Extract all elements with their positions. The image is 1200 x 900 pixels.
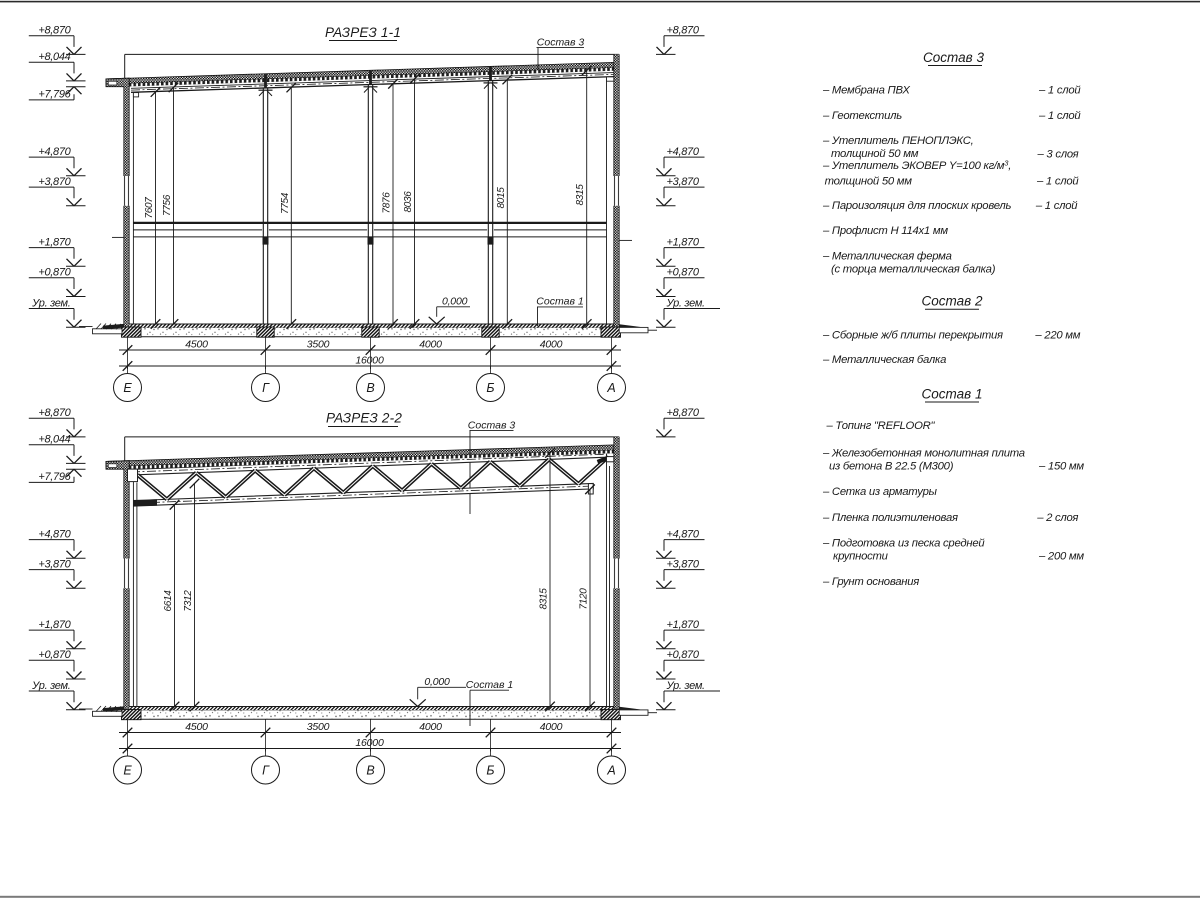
svg-text:Состав 1: Состав 1 [536,296,583,308]
svg-text:+8,870: +8,870 [667,25,700,37]
svg-text:(с торца металлическая балка): (с торца металлическая балка) [831,263,996,275]
svg-text:из бетона В 22.5 (М300): из бетона В 22.5 (М300) [829,461,954,473]
svg-text:+3,870: +3,870 [38,176,71,188]
svg-text:– 1 слой: – 1 слой [1036,176,1079,188]
svg-text:– Топинг "REFLOOR": – Топинг "REFLOOR" [826,420,936,432]
svg-text:РАЗРЕЗ 2-2: РАЗРЕЗ 2-2 [326,410,402,425]
svg-text:+1,870: +1,870 [667,619,700,631]
svg-text:+3,870: +3,870 [38,558,71,570]
svg-text:– 1 слой: – 1 слой [1038,110,1081,122]
svg-text:Состав 3: Состав 3 [923,50,984,65]
svg-text:Ур. зем.: Ур. зем. [666,297,705,309]
svg-text:– Металлическая балка: – Металлическая балка [822,354,946,366]
svg-text:4500: 4500 [185,339,208,351]
svg-text:+0,870: +0,870 [38,267,71,279]
svg-text:+3,870: +3,870 [667,176,700,188]
svg-text:+0,870: +0,870 [667,649,700,661]
svg-text:4000: 4000 [540,721,563,733]
svg-text:3500: 3500 [307,339,330,351]
svg-text:– 150 мм: – 150 мм [1038,461,1084,473]
svg-text:7754: 7754 [280,192,291,214]
svg-text:– Грунт основания: – Грунт основания [822,576,919,588]
svg-text:толщиной 50 мм: толщиной 50 мм [825,176,913,188]
svg-text:0,000: 0,000 [424,676,450,688]
svg-text:– 220 мм: – 220 мм [1034,330,1080,342]
svg-text:+0,870: +0,870 [667,267,700,279]
svg-text:– Пароизоляция для плоских кро: – Пароизоляция для плоских кровель [822,200,1012,212]
svg-text:В: В [366,381,374,395]
svg-text:– Профлист Н 114х1 мм: – Профлист Н 114х1 мм [822,225,948,237]
svg-text:+3,870: +3,870 [667,558,700,570]
svg-text:6614: 6614 [163,590,174,612]
svg-text:– Железобетонная монолитная п: – Железобетонная монолитная плита [822,448,1025,460]
svg-text:Состав 2: Состав 2 [922,294,983,309]
svg-text:– 200 мм: – 200 мм [1038,550,1084,562]
svg-text:– Сетка из арматуры: – Сетка из арматуры [822,486,938,498]
svg-text:3500: 3500 [307,721,330,733]
svg-text:Б: Б [486,381,494,395]
svg-text:– Подготовка из песка средней: – Подготовка из песка средней [822,538,985,550]
svg-text:А: А [606,381,615,395]
svg-text:+4,870: +4,870 [667,528,700,540]
svg-text:4000: 4000 [540,339,563,351]
svg-text:Состав 1: Состав 1 [466,679,513,691]
svg-text:– 2 слоя: – 2 слоя [1036,512,1078,524]
svg-text:Состав 3: Состав 3 [537,36,585,48]
svg-text:– Утеплитель ПЕНОПЛЭКС,: – Утеплитель ПЕНОПЛЭКС, [822,135,974,147]
svg-text:– 3 слоя: – 3 слоя [1037,149,1079,161]
svg-text:+1,870: +1,870 [38,619,71,631]
svg-text:крупности: крупности [833,550,889,562]
svg-text:+0,870: +0,870 [38,649,71,661]
svg-text:– Металлическая ферма: – Металлическая ферма [822,250,952,262]
svg-text:Ур. зем.: Ур. зем. [31,297,70,309]
svg-text:16000: 16000 [355,737,384,749]
svg-text:Е: Е [123,381,132,395]
svg-text:16000: 16000 [355,355,384,367]
svg-text:Состав 1: Состав 1 [922,386,983,401]
svg-text:+8,870: +8,870 [38,407,71,419]
svg-text:7756: 7756 [162,194,173,216]
svg-text:+7,796: +7,796 [38,89,71,101]
svg-text:– Сборные ж/б плиты перекрытия: – Сборные ж/б плиты перекрытия [822,330,1003,342]
svg-text:– Пленка полиэтиленовая: – Пленка полиэтиленовая [822,512,958,524]
svg-text:Е: Е [123,763,132,777]
svg-text:Ур. зем.: Ур. зем. [666,680,705,692]
svg-text:7120: 7120 [579,588,590,610]
svg-text:4000: 4000 [419,339,442,351]
svg-text:Ур. зем.: Ур. зем. [31,680,70,692]
svg-text:+8,870: +8,870 [667,407,700,419]
svg-text:+8,870: +8,870 [38,25,71,37]
svg-text:– Геотекстиль: – Геотекстиль [822,110,902,122]
svg-text:+7,796: +7,796 [38,471,71,483]
svg-text:А: А [606,763,615,777]
svg-text:+1,870: +1,870 [667,236,700,248]
svg-text:8015: 8015 [496,187,507,209]
svg-text:7312: 7312 [183,590,194,612]
svg-text:Состав 3: Состав 3 [468,419,516,431]
svg-text:– Мембрана ПВХ: – Мембрана ПВХ [822,85,910,97]
svg-text:В: В [366,763,374,777]
svg-text:8315: 8315 [575,184,586,206]
svg-text:+4,870: +4,870 [38,528,71,540]
svg-text:8036: 8036 [403,191,414,213]
svg-text:+1,870: +1,870 [38,236,71,248]
svg-text:0,000: 0,000 [442,295,468,307]
svg-text:– 1 слой: – 1 слой [1035,200,1078,212]
svg-text:8315: 8315 [539,588,550,610]
svg-text:РАЗРЕЗ 1-1: РАЗРЕЗ 1-1 [325,25,401,40]
svg-text:7876: 7876 [382,192,393,214]
svg-text:+8,044: +8,044 [38,434,70,446]
svg-text:– Утеплитель ЭКОВЕР Y=100 кг/м: – Утеплитель ЭКОВЕР Y=100 кг/м3, [822,159,1011,173]
svg-text:толщиной 50 мм: толщиной 50 мм [831,148,919,160]
svg-text:+4,870: +4,870 [667,146,700,158]
svg-text:7607: 7607 [144,197,155,219]
svg-text:+4,870: +4,870 [38,146,71,158]
svg-text:Г: Г [262,763,270,777]
svg-text:Б: Б [486,763,494,777]
svg-text:4500: 4500 [185,721,208,733]
svg-text:+8,044: +8,044 [38,51,70,63]
svg-text:Г: Г [262,381,270,395]
svg-text:4000: 4000 [419,721,442,733]
svg-text:– 1 слой: – 1 слой [1038,85,1081,97]
